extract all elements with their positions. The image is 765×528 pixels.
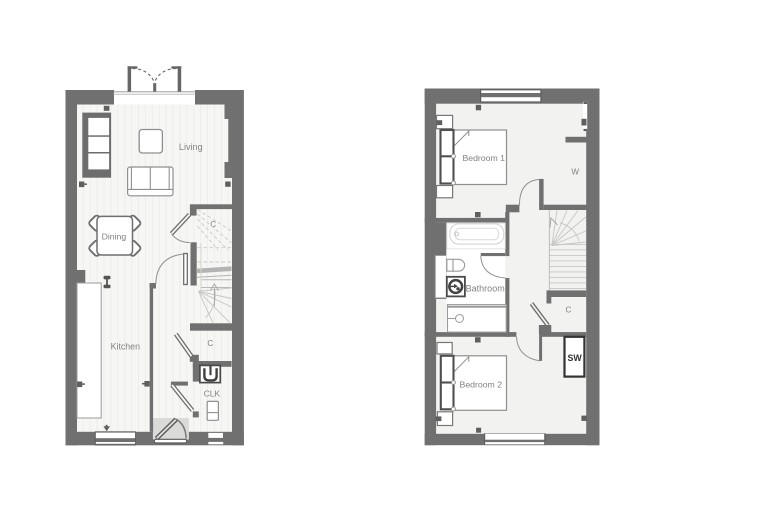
svg-text:Living: Living <box>179 142 203 152</box>
svg-text:CLK: CLK <box>204 389 221 399</box>
svg-text:Dining: Dining <box>102 231 127 241</box>
svg-text:Kitchen: Kitchen <box>111 341 140 351</box>
svg-text:Bedroom 1: Bedroom 1 <box>462 153 505 163</box>
svg-text:C: C <box>207 339 213 348</box>
svg-text:Bathroom: Bathroom <box>466 284 505 294</box>
svg-text:Bedroom 2: Bedroom 2 <box>460 380 503 390</box>
svg-text:W: W <box>571 167 579 176</box>
svg-text:SW: SW <box>568 353 583 363</box>
svg-text:C: C <box>566 305 572 314</box>
